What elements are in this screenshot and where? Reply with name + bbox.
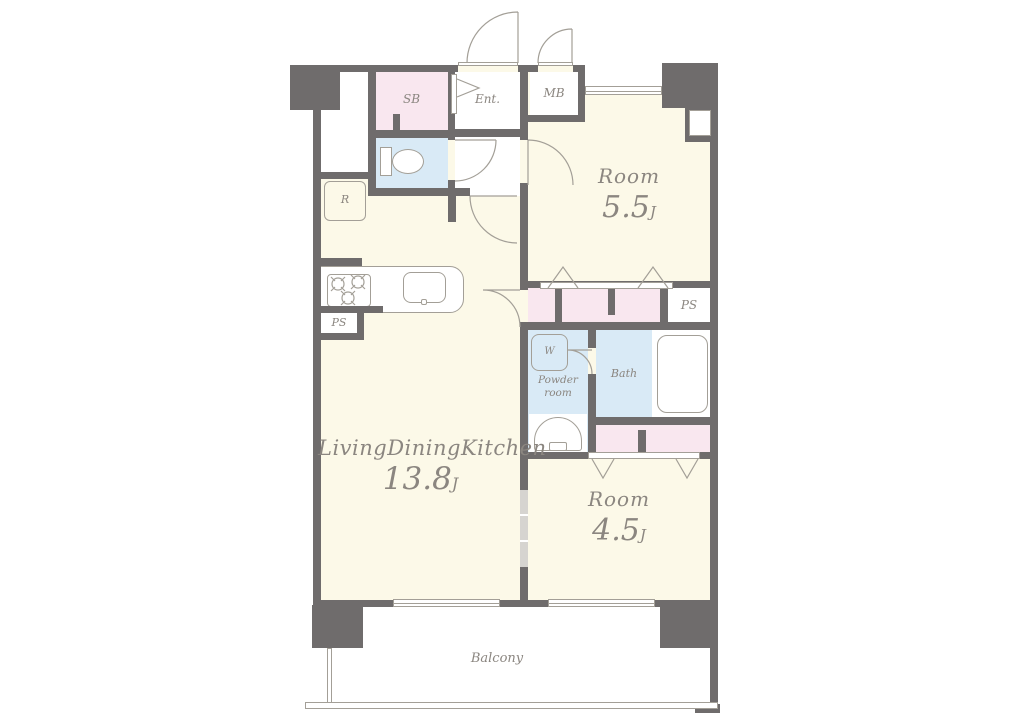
toilet-door-arc xyxy=(455,140,496,181)
label-w: W xyxy=(531,346,568,357)
label-bath: Bath xyxy=(592,367,656,380)
room-name: Room xyxy=(545,164,713,188)
closet-fold-mark xyxy=(676,459,698,478)
label-room-45: Room 4.5J xyxy=(535,487,703,548)
label-ldk: LivingDiningKitchen 13.8J xyxy=(318,436,523,497)
entrance-door-arc xyxy=(467,12,518,63)
storage-door-arc xyxy=(483,290,520,327)
ldk-name: LivingDiningKitchen xyxy=(318,436,523,460)
label-room-55: Room 5.5J xyxy=(545,164,713,225)
label-mb: MB xyxy=(530,86,578,100)
label-powder-line1: Powder xyxy=(526,374,590,387)
closet-fold-mark xyxy=(548,267,578,288)
ldk-door-arc xyxy=(470,196,517,243)
room-size: 4.5J xyxy=(535,513,703,548)
stove-burners xyxy=(331,275,365,305)
floor-plan: SB Ent. MB R PS PS W Bath Powder room Ro… xyxy=(0,0,1024,724)
size-value: 4.5 xyxy=(592,513,640,548)
label-balcony: Balcony xyxy=(397,651,597,666)
ldk-size: 13.8J xyxy=(318,461,523,497)
size-unit: J xyxy=(650,203,656,221)
label-ps-left: PS xyxy=(321,316,357,329)
label-ent: Ent. xyxy=(455,92,520,106)
label-ps-right: PS xyxy=(668,298,710,312)
room-name: Room xyxy=(535,487,703,511)
size-unit: J xyxy=(640,526,646,544)
room-size: 5.5J xyxy=(545,190,713,225)
label-powder-line2: room xyxy=(526,387,590,400)
size-unit: J xyxy=(452,474,458,493)
label-r: R xyxy=(324,193,366,206)
closet-fold-mark xyxy=(592,459,614,478)
mb-door-arc xyxy=(538,29,572,63)
size-value: 5.5 xyxy=(602,190,650,225)
label-powder-room: Powder room xyxy=(526,374,590,400)
label-sb: SB xyxy=(375,92,448,106)
bath-door-arc xyxy=(568,350,592,374)
door-swing-and-marks xyxy=(0,0,1024,724)
closet-fold-mark xyxy=(638,267,668,288)
size-value: 13.8 xyxy=(383,461,452,497)
